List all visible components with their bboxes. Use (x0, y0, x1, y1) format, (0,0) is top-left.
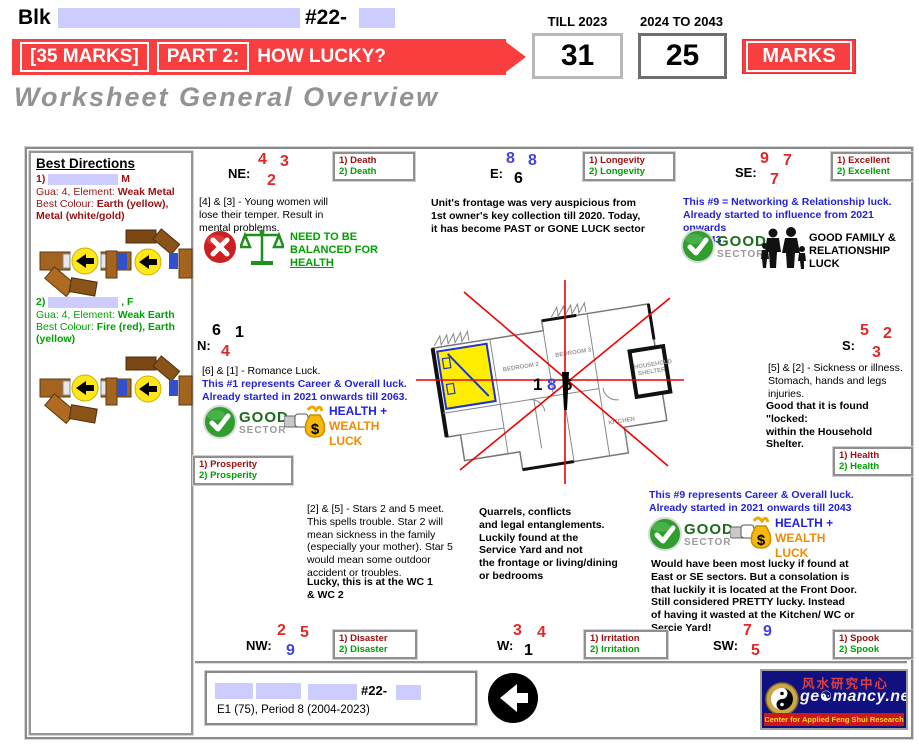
stars-2-5-bold-note: Lucky, this is at the WC 1 & WC 2 (307, 576, 457, 602)
unit-redaction (396, 685, 421, 700)
stars-2-5-note: [2] & [5] - Stars 2 and 5 meet. This spe… (307, 503, 457, 580)
person1-name-redaction (48, 174, 118, 185)
w-rating-box: 1) Irritation 2) Irritation (584, 630, 668, 659)
person1-colour: Best Colour: Earth (yellow), Metal (whit… (36, 198, 186, 223)
geomancy-logo: 风水研究中心 ge☯mancy.net Center for Applied F… (760, 669, 908, 730)
n-blue-note: This #1 represents Career & Overall luck… (202, 378, 417, 404)
floor-plan: BEDROOM 2 BEDROOM 3 KITCHEN HOUSEHOLD SH… (402, 268, 692, 496)
s-rating-box: 1) Health 2) Health (833, 447, 913, 476)
svg-text:8: 8 (547, 375, 556, 394)
highlighted-master-bedroom (437, 344, 495, 409)
balance-scale-icon (240, 228, 284, 268)
ne-balance-note: NEED TO BE BALANCED FOR HEALTH (290, 231, 392, 271)
se-rating-box: 1) Excellent 2) Excellent (831, 152, 913, 181)
banner-question: HOW LUCKY? (257, 46, 386, 68)
good-sector-icon (648, 517, 682, 551)
address-redaction (308, 684, 357, 700)
n-health-wealth-note: HEALTH + WEALTH LUCK (329, 404, 387, 449)
person2-bed-directions-icon (38, 355, 194, 427)
footer-unit-prefix: #22- (361, 683, 387, 698)
2024-2043-score[interactable]: 25 (638, 33, 727, 79)
e-description: Unit's frontage was very auspicious from… (431, 197, 647, 235)
wealth-bag-icon (284, 402, 326, 446)
marks-badge: [35 MARKS] (20, 42, 149, 72)
till-2023-label: TILL 2023 (532, 14, 623, 29)
part-label: PART 2: (157, 42, 249, 72)
address-redaction (256, 683, 301, 699)
back-arrow-button[interactable] (487, 672, 539, 724)
number9-blue-note: This #9 represents Career & Overall luck… (649, 489, 877, 515)
se-family-luck-note: GOOD FAMILY & RELATIONSHIP LUCK (809, 232, 904, 272)
address-summary-box: #22- E1 (75), Period 8 (2004-2023) (205, 671, 477, 725)
sector-se-stars: SE: 9 7 7 (735, 150, 827, 196)
nw-rating-box: 1) Disaster 2) Disaster (333, 630, 417, 659)
marks-button: MARKS (742, 39, 856, 74)
sector-sw-stars: SW: 7 9 5 (713, 622, 805, 668)
svg-text:1: 1 (533, 375, 542, 394)
logo-site-name: ge☯mancy.net (800, 688, 908, 706)
s-description: [5] & [2] - Sickness or illness. Stomach… (768, 362, 903, 400)
n-rating-box: 1) Prosperity 2) Prosperity (193, 456, 293, 485)
person2-name-line: 2) , F (36, 296, 184, 308)
worksheet-subtitle: Worksheet General Overview (14, 82, 439, 113)
person2-name-redaction (48, 297, 118, 308)
good-sector-icon (681, 229, 715, 263)
wealth-bag-icon (730, 513, 772, 557)
worksheet-page: $ Blk #22- (0, 0, 919, 750)
s-bold-note: Good that it is found "locked: within th… (766, 400, 911, 451)
unit-prefix: #22- (305, 6, 347, 30)
sector-e-stars: E: 8 8 6 (490, 150, 582, 196)
svg-text:6: 6 (563, 375, 572, 394)
sector-n-stars: N: 6 1 4 (197, 322, 289, 368)
blk-label: Blk (18, 6, 51, 30)
person1-bed-directions-icon (38, 228, 194, 300)
address-redaction (58, 8, 300, 28)
banner-arrow-icon (502, 39, 526, 75)
address-redaction (215, 683, 253, 699)
person2-gua: Gua: 4, Element: Weak Earth (36, 309, 186, 321)
person1-name-line: 1) M (36, 173, 184, 185)
sw-rating-box: 1) Spook 2) Spook (833, 630, 913, 659)
red-x-icon (203, 230, 237, 264)
n-description: [6] & [1] - Romance Luck. (202, 365, 392, 378)
period-info: E1 (75), Period 8 (2004-2023) (217, 704, 370, 716)
sector-ne-stars: NE: 4 3 2 (228, 151, 320, 197)
n-good-sector-label: GOOD SECTOR (239, 410, 289, 437)
sector-w-stars: W: 3 4 1 (497, 622, 589, 668)
good-sector-icon (203, 405, 237, 439)
2024-2043-label: 2024 TO 2043 (632, 14, 731, 29)
ne-rating-box: 1) Death 2) Death (333, 152, 415, 181)
quarrels-note: Quarrels, conflicts and legal entangleme… (479, 506, 629, 583)
yin-yang-icon: ☯ (820, 689, 833, 705)
logo-tagline: Center for Applied Feng Shui Research (764, 713, 904, 726)
till-2023-score[interactable]: 31 (532, 33, 623, 79)
number9-health-wealth-note: HEALTH + WEALTH LUCK (775, 516, 833, 561)
person2-colour: Best Colour: Fire (red), Earth (yellow) (36, 321, 186, 346)
number9-good-sector-label: GOOD SECTOR (684, 522, 734, 549)
family-icon (760, 226, 806, 270)
e-rating-box: 1) Longevity 2) Longevity (583, 152, 675, 181)
person1-gua: Gua: 4, Element: Weak Metal (36, 186, 186, 198)
best-directions-title: Best Directions (36, 156, 135, 171)
unit-redaction (359, 8, 395, 28)
sector-nw-stars: NW: 2 5 9 (246, 622, 338, 668)
part2-banner: [35 MARKS] PART 2: HOW LUCKY? (12, 39, 506, 75)
yin-yang-coin-icon (765, 682, 799, 716)
